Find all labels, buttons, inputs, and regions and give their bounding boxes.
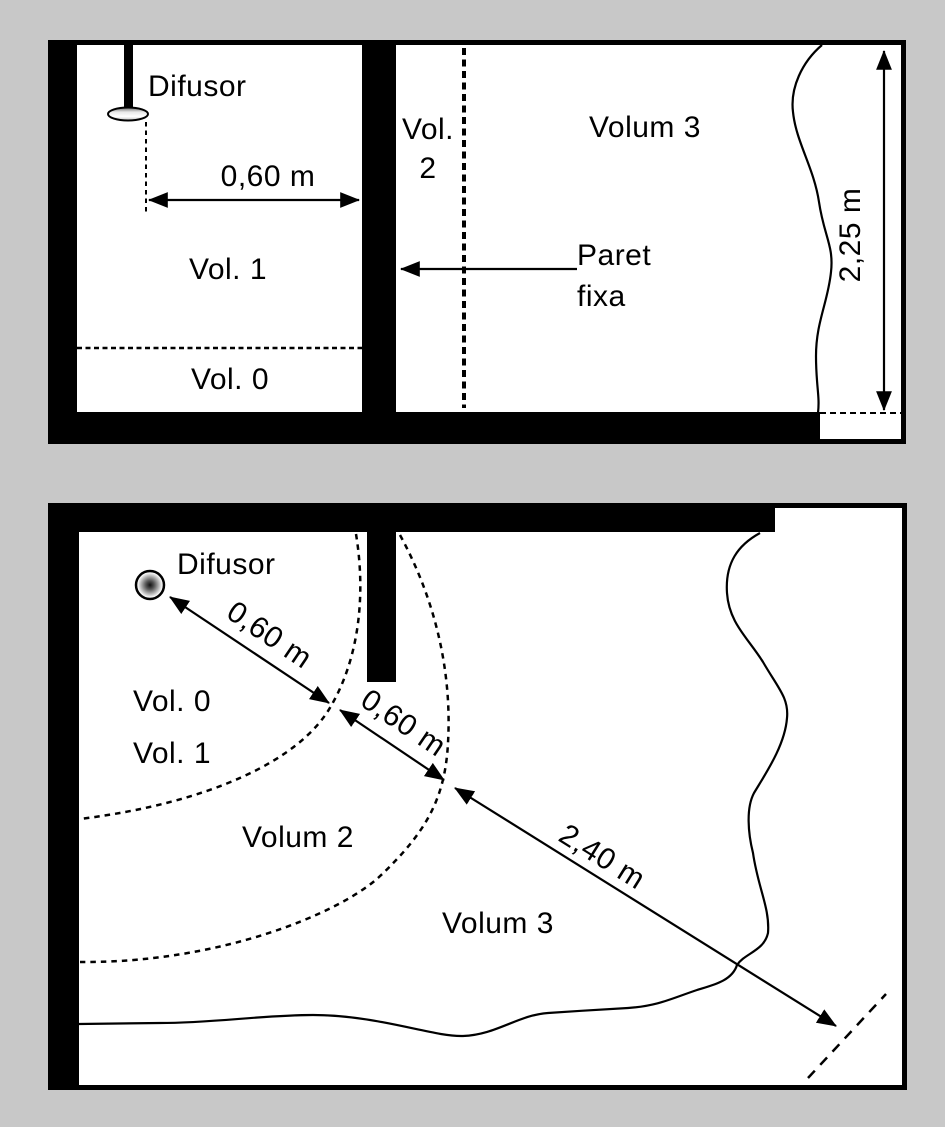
diffuser-icon: [136, 571, 164, 599]
floor-slab: [52, 412, 820, 440]
plan-diagram: 0,60 m 0,60 m 2,40 m Difusor Vol. 0 Vol.…: [48, 503, 907, 1090]
label-vol2-line1: Vol.: [402, 113, 454, 146]
wall-left: [52, 507, 79, 1085]
wall-fixed: [362, 44, 396, 412]
label-dim-height: 2,25 m: [834, 188, 867, 283]
shower-head-icon: [108, 108, 148, 121]
label-vol1: Vol. 1: [189, 253, 267, 286]
label-vol0: Vol. 0: [133, 685, 211, 718]
wall-top: [52, 507, 775, 532]
label-paret-line2: fixa: [577, 280, 626, 313]
elevation-diagram: 0,60 m 2,25 m Difusor Vol. 1 Vol. 0 Vol.…: [48, 40, 906, 444]
label-dim-width: 0,60 m: [221, 160, 316, 193]
label-paret-line1: Paret: [577, 239, 651, 272]
label-volum3: Volum 3: [589, 111, 701, 144]
wall-fixed-stub: [367, 532, 396, 682]
label-vol0: Vol. 0: [191, 363, 269, 396]
wall-left: [52, 44, 77, 440]
label-vol1: Vol. 1: [133, 737, 211, 770]
plan-frame: [51, 506, 905, 1088]
label-volum2: Volum 2: [242, 821, 354, 854]
label-difusor: Difusor: [177, 548, 276, 581]
shower-pipe: [124, 44, 133, 114]
label-vol2-line2: 2: [419, 152, 436, 185]
label-difusor: Difusor: [148, 70, 247, 103]
figure-canvas: 0,60 m 2,25 m Difusor Vol. 1 Vol. 0 Vol.…: [0, 0, 945, 1127]
label-volum3: Volum 3: [442, 907, 554, 940]
